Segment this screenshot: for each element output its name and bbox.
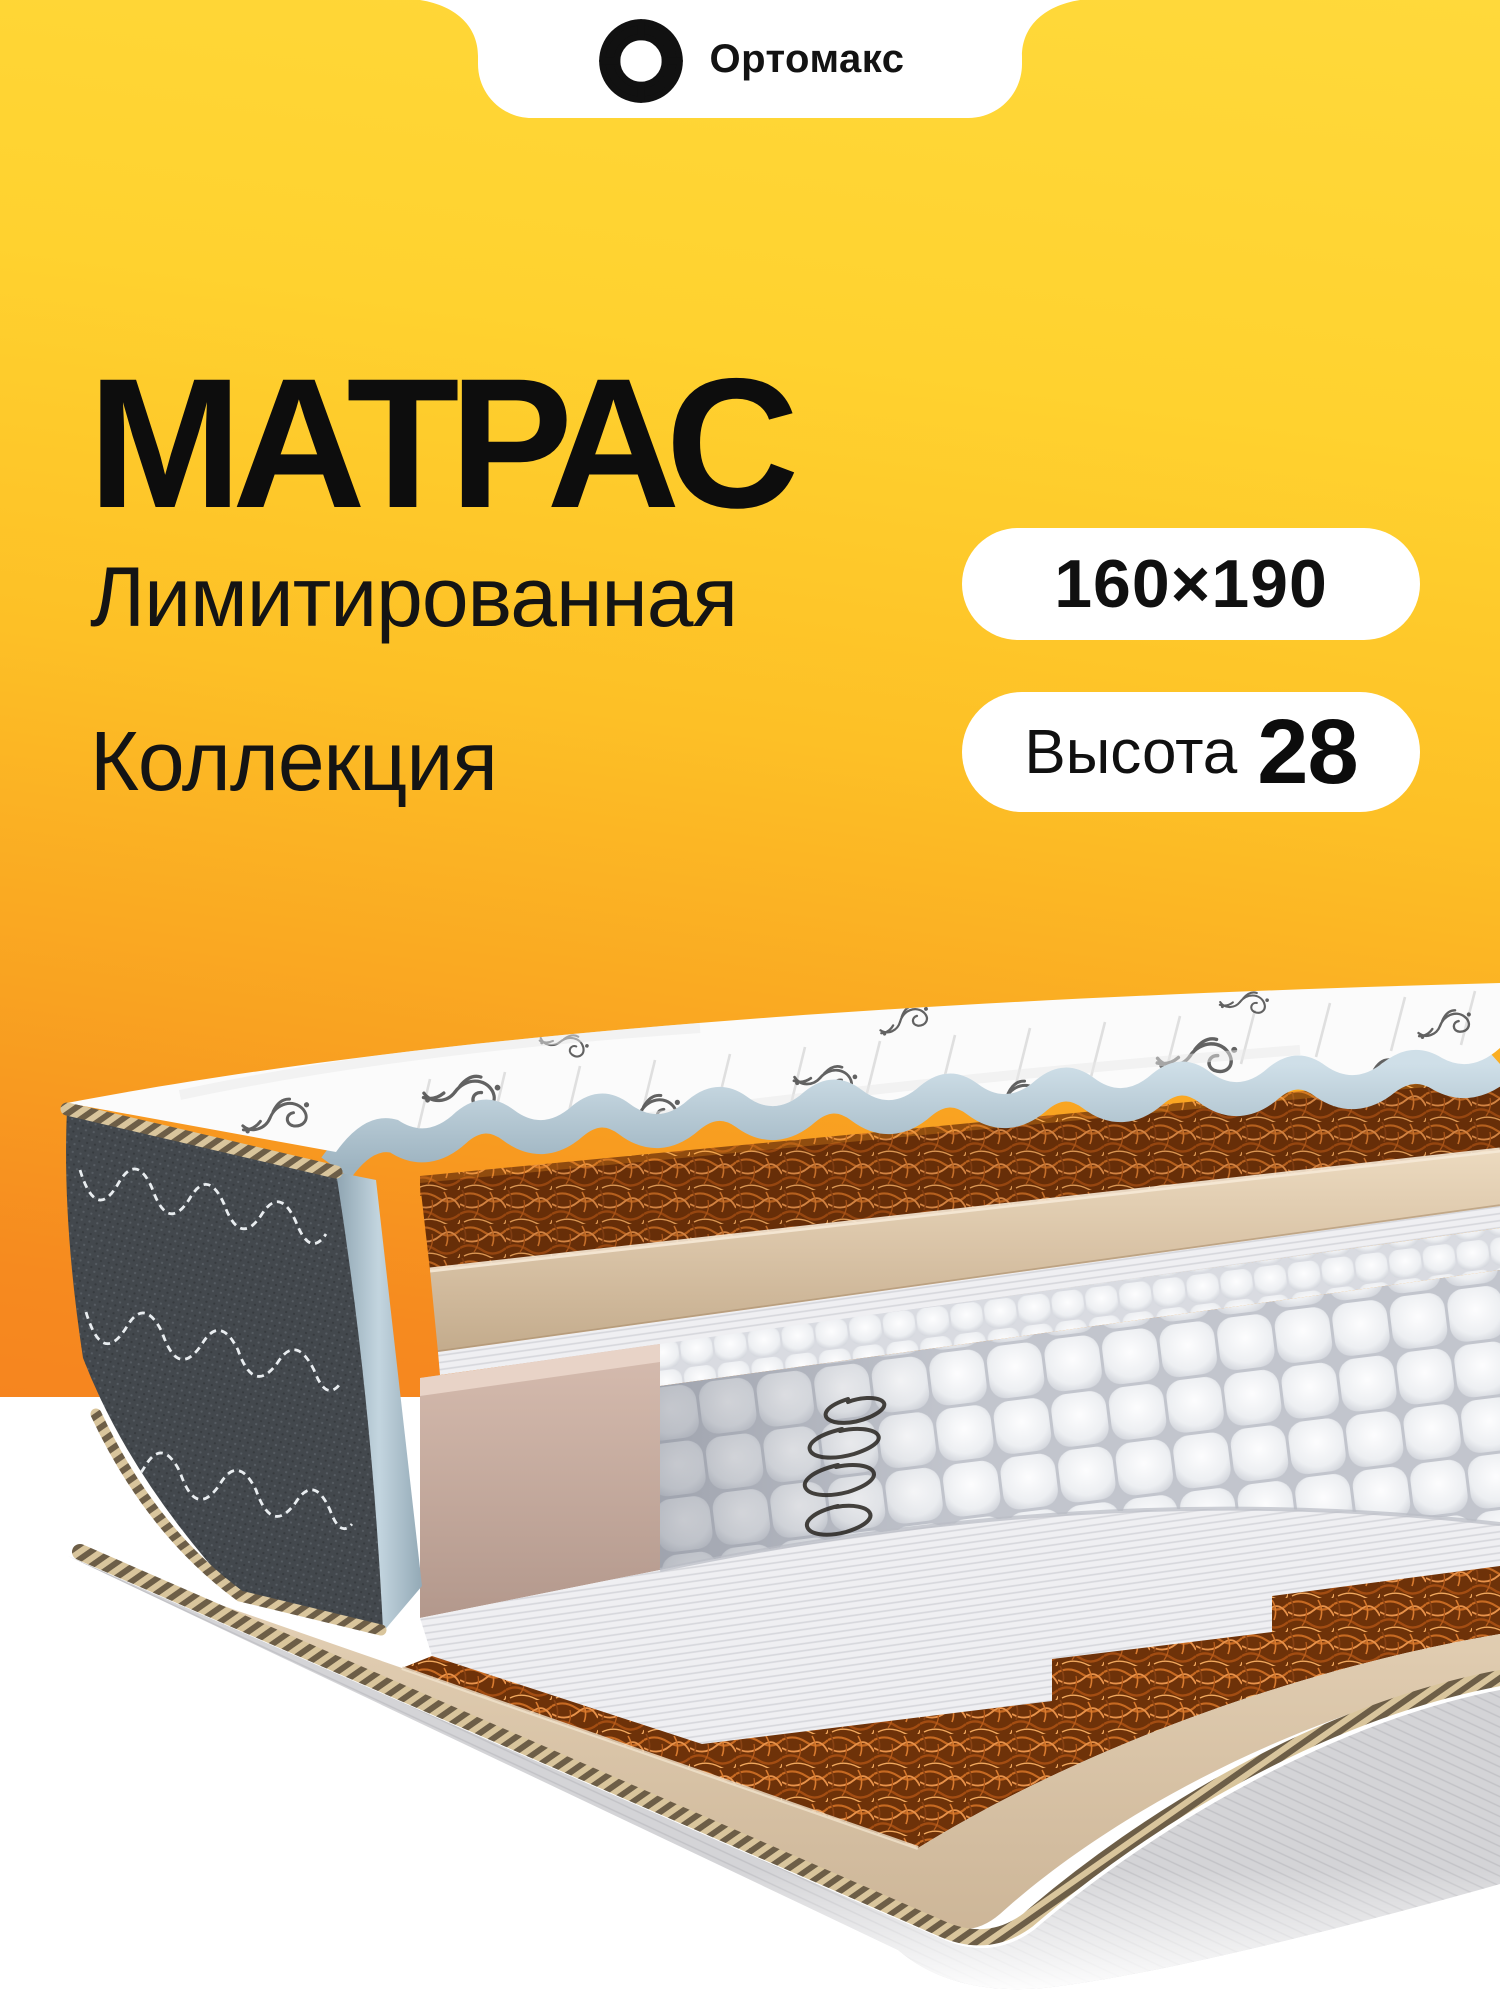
brand-header: Ортомакс — [478, 0, 1022, 118]
height-badge-label: Высота — [1024, 717, 1237, 788]
height-badge: Высота 28 — [962, 692, 1420, 812]
shutter-swirl-icon — [595, 15, 687, 107]
quilted-side-flap — [66, 1109, 383, 1630]
size-badge: 160×190 — [962, 528, 1420, 640]
height-badge-value: 28 — [1257, 700, 1357, 805]
side-foam-wall — [420, 1344, 660, 1618]
size-badge-value: 160×190 — [1054, 545, 1328, 623]
subtitle-line-2: Коллекция — [90, 712, 497, 811]
brand-name: Ортомакс — [709, 37, 904, 82]
page-title: МАТРАС — [88, 352, 789, 537]
mattress-cutaway-photo — [0, 0, 1500, 2000]
subtitle-line-1: Лимитированная — [90, 548, 737, 647]
product-banner: Ортомакс МАТРАС Лимитированная Коллекция… — [0, 0, 1500, 2000]
